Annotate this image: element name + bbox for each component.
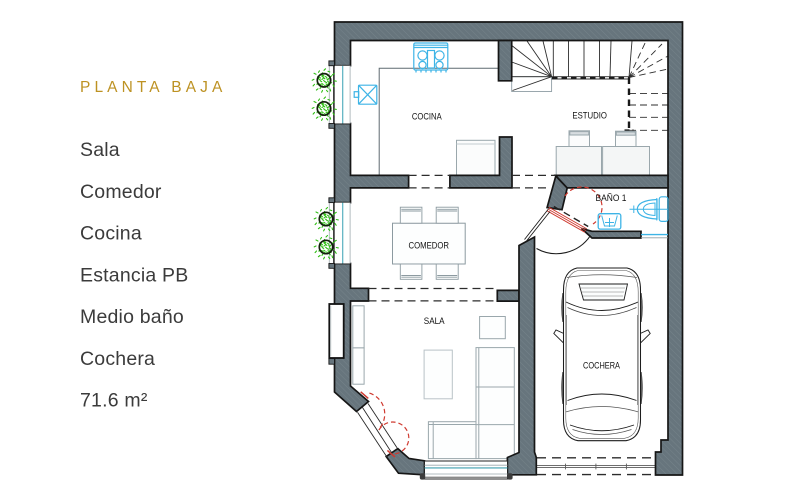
svg-text:COCINA: COCINA [412, 112, 442, 123]
svg-text:Comedor: Comedor [80, 181, 162, 203]
svg-text:Medio baño: Medio baño [80, 306, 184, 328]
svg-text:BAÑO 1: BAÑO 1 [596, 193, 627, 204]
svg-text:SALA: SALA [424, 316, 445, 327]
svg-text:Cocina: Cocina [80, 223, 142, 245]
svg-text:71.6 m²: 71.6 m² [80, 390, 148, 412]
svg-text:PLANTA BAJA: PLANTA BAJA [80, 79, 226, 96]
svg-text:Estancia PB: Estancia PB [80, 265, 188, 287]
svg-text:Sala: Sala [80, 139, 120, 161]
svg-text:Cochera: Cochera [80, 348, 155, 370]
svg-text:ESTUDIO: ESTUDIO [572, 111, 607, 122]
svg-text:COCHERA: COCHERA [583, 360, 621, 371]
svg-text:COMEDOR: COMEDOR [409, 241, 450, 252]
